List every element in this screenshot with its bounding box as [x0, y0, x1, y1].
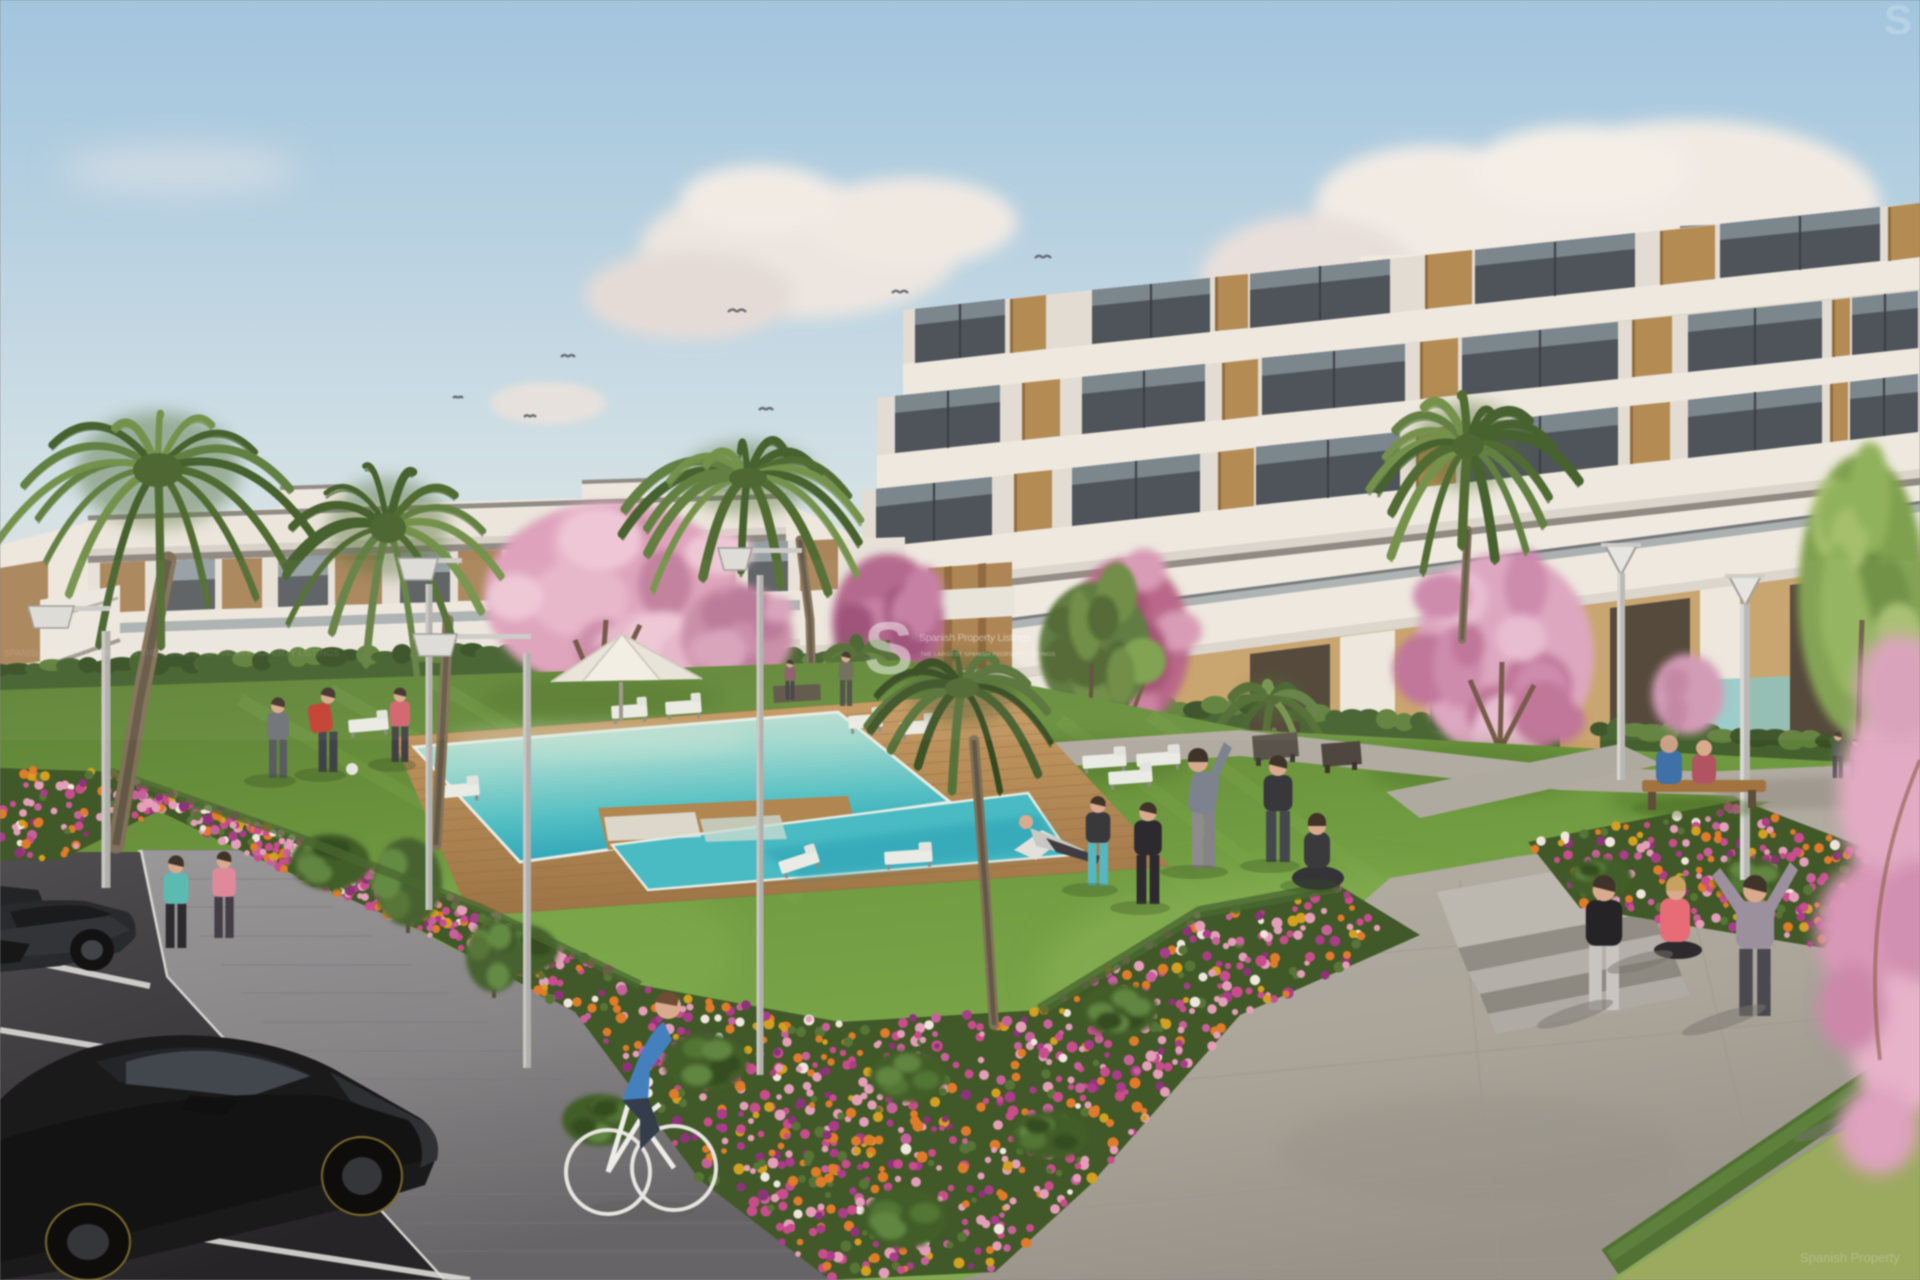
svg-text:THE LARGEST SPANISH PROPERTY L: THE LARGEST SPANISH PROPERTY LISTINGS — [920, 652, 1056, 658]
svg-text:S: S — [864, 607, 913, 690]
svg-text:SPANISH PROPERTY LISTINGS TH: SPANISH PROPERTY LISTINGS THE LARGEST SP… — [4, 648, 339, 658]
svg-text:Spanish Property Listings: Spanish Property Listings — [919, 632, 1031, 644]
svg-text:S: S — [1884, 0, 1912, 43]
svg-text:Spanish Property: Spanish Property — [1800, 1250, 1900, 1265]
